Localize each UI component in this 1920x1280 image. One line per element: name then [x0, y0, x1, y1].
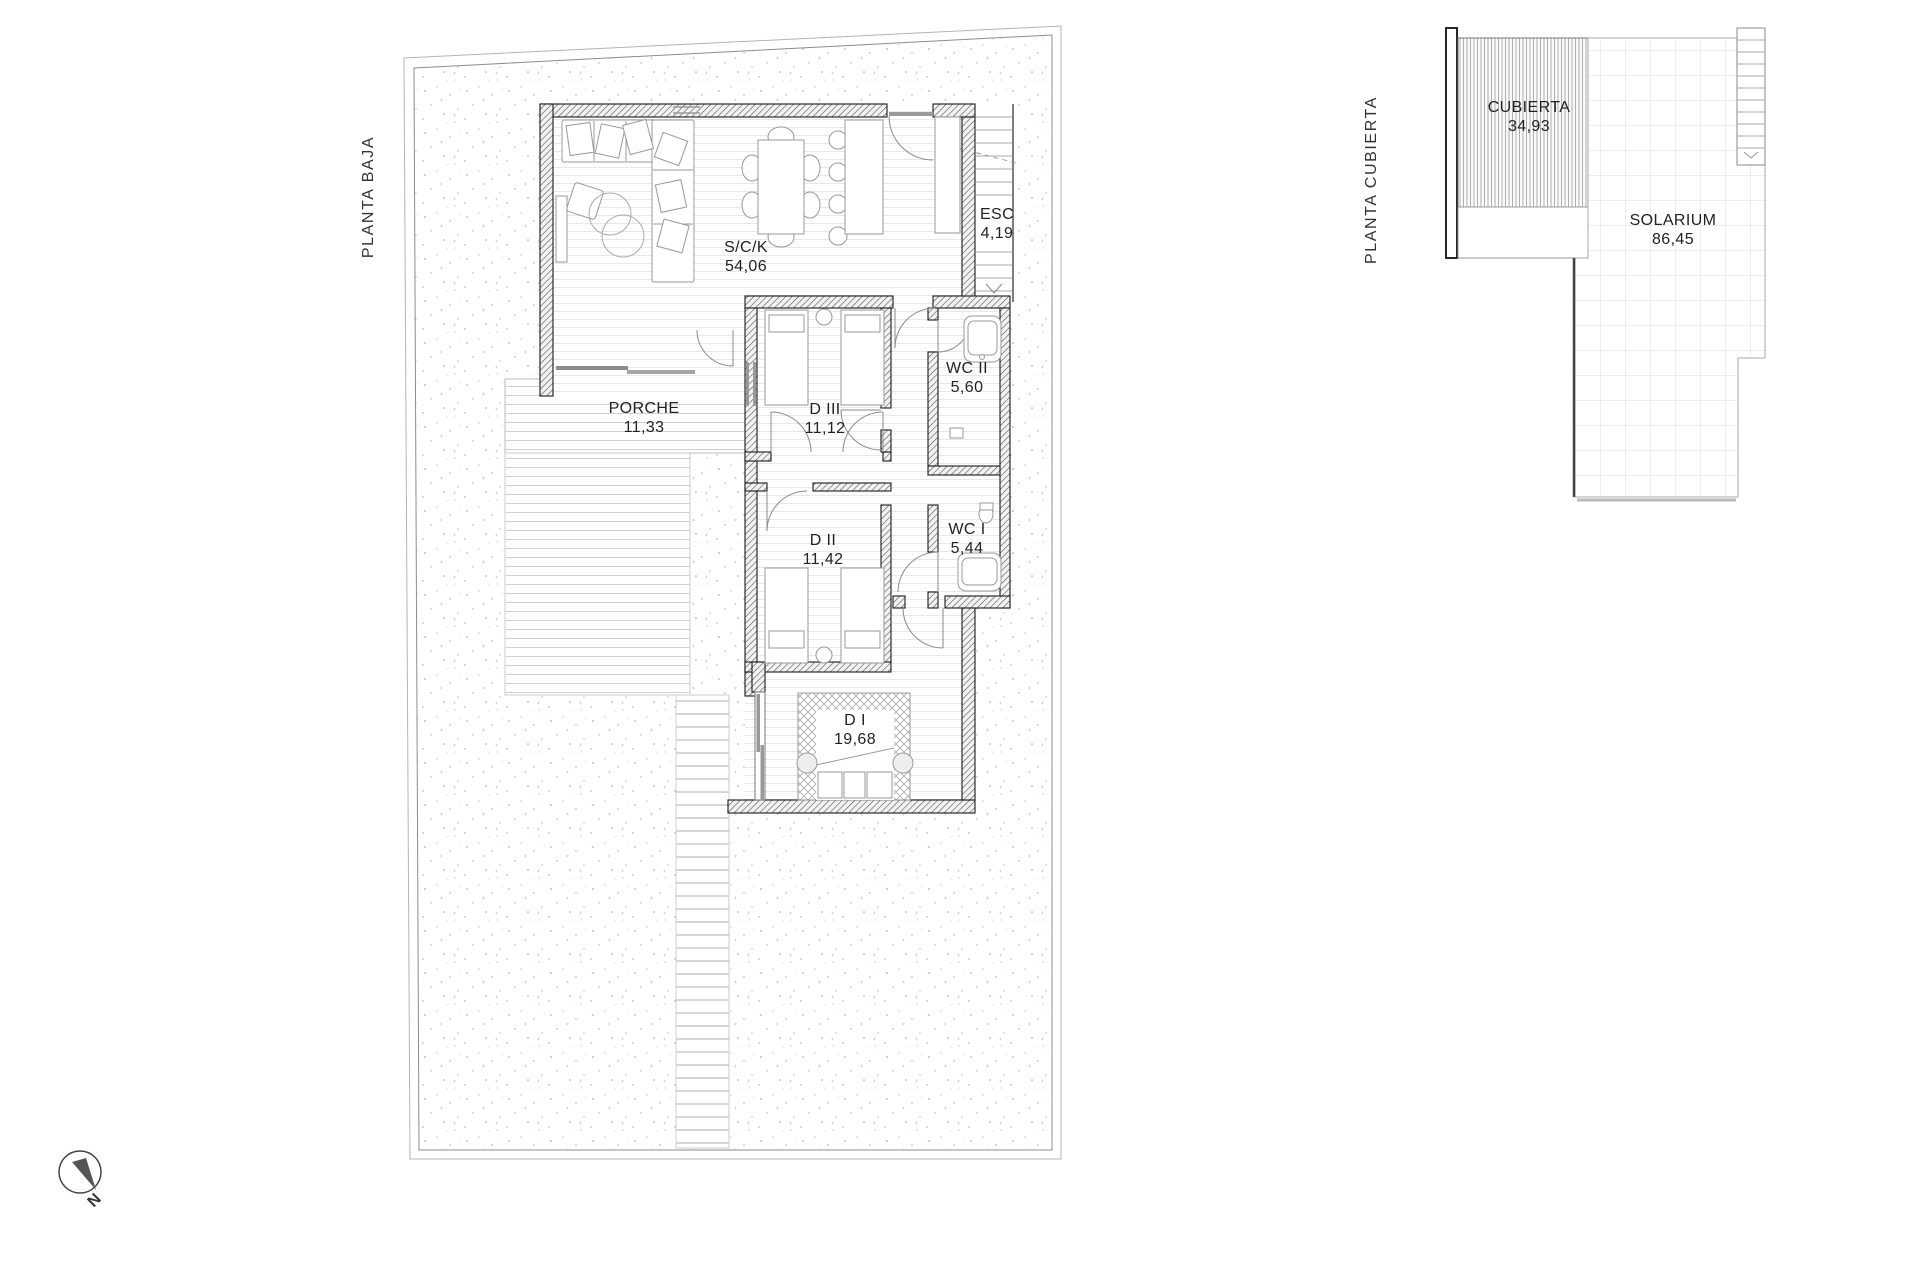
room-label-porche: PORCHE 11,33 [609, 399, 680, 437]
kitchen-island [845, 120, 883, 234]
floor-plan-sheet: PLANTA BAJA S/C/K 54,06 ESC 4,19 PORCHE … [0, 0, 1920, 1280]
north-arrow-icon [59, 1151, 101, 1193]
room-label-cubierta: CUBIERTA 34,93 [1488, 98, 1571, 136]
room-label-solarium: SOLARIUM 86,45 [1630, 211, 1717, 249]
kitchen-counter [935, 117, 960, 233]
room-area: 11,12 [805, 419, 846, 438]
cushion [566, 122, 594, 155]
planta-cubierta-title: PLANTA CUBIERTA [1363, 96, 1381, 264]
room-label-sck: S/C/K 54,06 [724, 238, 768, 276]
roof-stairs [1737, 28, 1765, 165]
room-area: 11,42 [803, 550, 844, 569]
room-name: SOLARIUM [1630, 211, 1717, 230]
floor-plan-drawing [0, 0, 1920, 1280]
room-area: 86,45 [1630, 230, 1717, 249]
room-area: 5,60 [946, 378, 988, 397]
room-area: 19,68 [834, 730, 876, 749]
room-label-d3: D III 11,12 [805, 400, 846, 438]
bar-stool [829, 131, 847, 149]
nightstand [797, 753, 817, 773]
terrace-deck [505, 453, 690, 695]
room-name: D III [805, 400, 846, 419]
room-name: WC I [948, 520, 985, 539]
entrance-door-leaf [889, 112, 933, 116]
room-name: D II [803, 531, 844, 550]
garden-path [676, 695, 729, 1148]
room-name: ESC [980, 205, 1014, 224]
room-name: WC II [946, 359, 988, 378]
bedroom-window [746, 362, 749, 406]
room-label-wc1: WC I 5,44 [948, 520, 985, 558]
room-area: 5,44 [948, 539, 985, 558]
bedside-table [816, 309, 832, 325]
washbasin [950, 428, 963, 438]
bedside-table [816, 647, 832, 663]
single-bed [765, 568, 808, 663]
room-name: PORCHE [609, 399, 680, 418]
nightstand [893, 753, 913, 773]
single-bed [841, 568, 884, 663]
room-name: D I [834, 711, 876, 730]
dining-table [758, 140, 804, 234]
room-label-wc2: WC II 5,60 [946, 359, 988, 397]
room-label-esc: ESC 4,19 [980, 205, 1014, 243]
room-label-d2: D II 11,42 [803, 531, 844, 569]
planta-baja-title: PLANTA BAJA [360, 136, 378, 258]
room-area: 34,93 [1488, 117, 1571, 136]
room-area: 4,19 [980, 224, 1014, 243]
room-label-d1: D I 19,68 [834, 711, 876, 749]
roof-band [1458, 207, 1588, 258]
room-name: S/C/K [724, 238, 768, 257]
porch-sliding-door [556, 366, 628, 370]
roof-parapet-wall [1446, 28, 1457, 258]
room-area: 11,33 [609, 418, 680, 437]
pillow [818, 772, 842, 798]
room-area: 54,06 [724, 257, 768, 276]
console-table [556, 196, 567, 262]
room-name: CUBIERTA [1488, 98, 1571, 117]
